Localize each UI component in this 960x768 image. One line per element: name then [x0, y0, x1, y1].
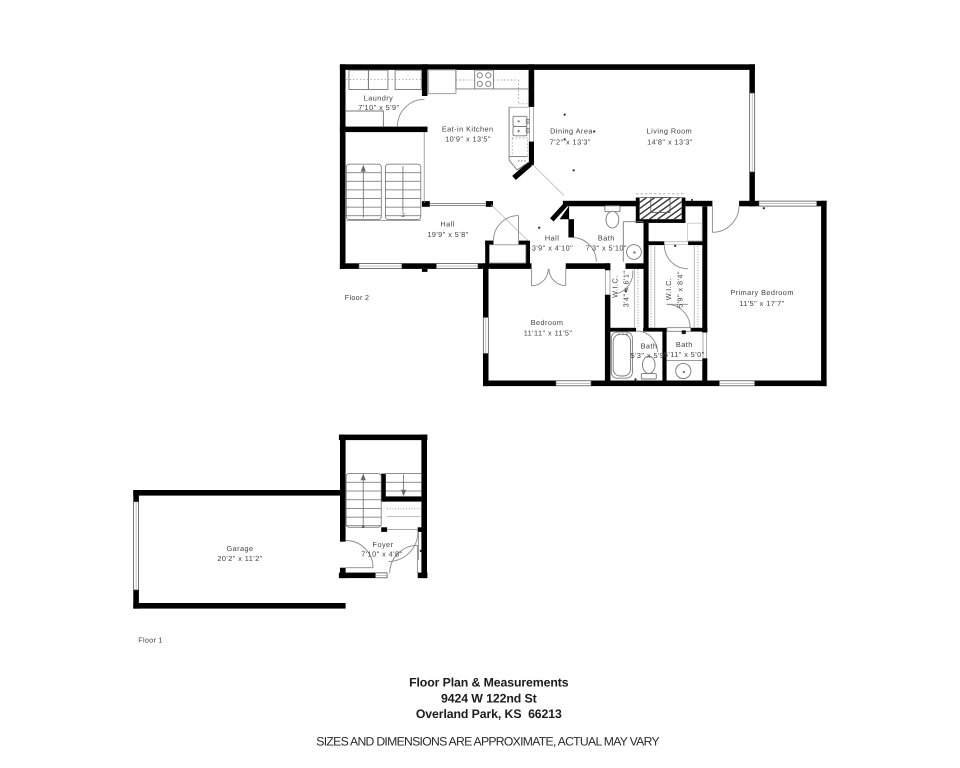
svg-text:W.I.C.: W.I.C.	[611, 275, 620, 298]
svg-text:10'9" x 13'5": 10'9" x 13'5"	[445, 135, 491, 144]
svg-text:7'2" x 13'3": 7'2" x 13'3"	[550, 137, 591, 146]
svg-text:11'11" x 11'5": 11'11" x 11'5"	[524, 329, 573, 338]
svg-text:Bedroom: Bedroom	[531, 318, 564, 327]
svg-text:Living Room: Living Room	[647, 126, 693, 135]
svg-text:Laundry: Laundry	[364, 93, 394, 102]
svg-text:Bath: Bath	[676, 340, 693, 349]
svg-text:14'8" x 13'3": 14'8" x 13'3"	[647, 137, 693, 146]
svg-text:3'9" x 4'10": 3'9" x 4'10"	[532, 244, 573, 253]
svg-text:Bath: Bath	[598, 234, 615, 243]
svg-text:Primary Bedroom: Primary Bedroom	[730, 288, 794, 297]
svg-text:5'3" x 5'9": 5'3" x 5'9"	[631, 351, 668, 360]
svg-text:Floor 2: Floor 2	[345, 293, 369, 302]
svg-text:2: 2	[401, 212, 405, 219]
svg-text:19'9" x 5'8": 19'9" x 5'8"	[427, 230, 468, 239]
svg-text:5'11" x 5'0": 5'11" x 5'0"	[664, 350, 705, 359]
svg-text:7'10" x 4'8": 7'10" x 4'8"	[361, 550, 402, 559]
svg-text:Floor Plan & Measurements: Floor Plan & Measurements	[409, 676, 569, 690]
svg-text:Garage: Garage	[226, 544, 253, 553]
svg-text:W.I.C.: W.I.C.	[664, 278, 673, 301]
svg-text:11'5" x 17'7": 11'5" x 17'7"	[739, 299, 784, 308]
svg-text:Floor 1: Floor 1	[138, 636, 162, 645]
svg-text:9424 W 122nd St: 9424 W 122nd St	[441, 691, 537, 705]
svg-text:Bath: Bath	[641, 341, 658, 350]
svg-text:Overland Park, KS 66213: Overland Park, KS 66213	[416, 707, 562, 721]
svg-text:3'4" x 6'1": 3'4" x 6'1"	[622, 271, 631, 308]
svg-text:Hall: Hall	[440, 220, 454, 229]
svg-text:Dining Area: Dining Area	[550, 126, 593, 135]
svg-text:20'2" x 11'2": 20'2" x 11'2"	[217, 554, 262, 563]
svg-text:Eat-in Kitchen: Eat-in Kitchen	[442, 124, 494, 133]
svg-text:Foyer: Foyer	[373, 540, 394, 549]
svg-text:7'10" x 5'9": 7'10" x 5'9"	[358, 103, 399, 112]
svg-text:Hall: Hall	[545, 234, 559, 243]
svg-text:7'3" x 5'10": 7'3" x 5'10"	[586, 244, 627, 253]
svg-text:SIZES AND DIMENSIONS ARE APPRO: SIZES AND DIMENSIONS ARE APPROXIMATE, AC…	[316, 735, 659, 749]
svg-text:5'9" x 8'4": 5'9" x 8'4"	[676, 271, 685, 308]
